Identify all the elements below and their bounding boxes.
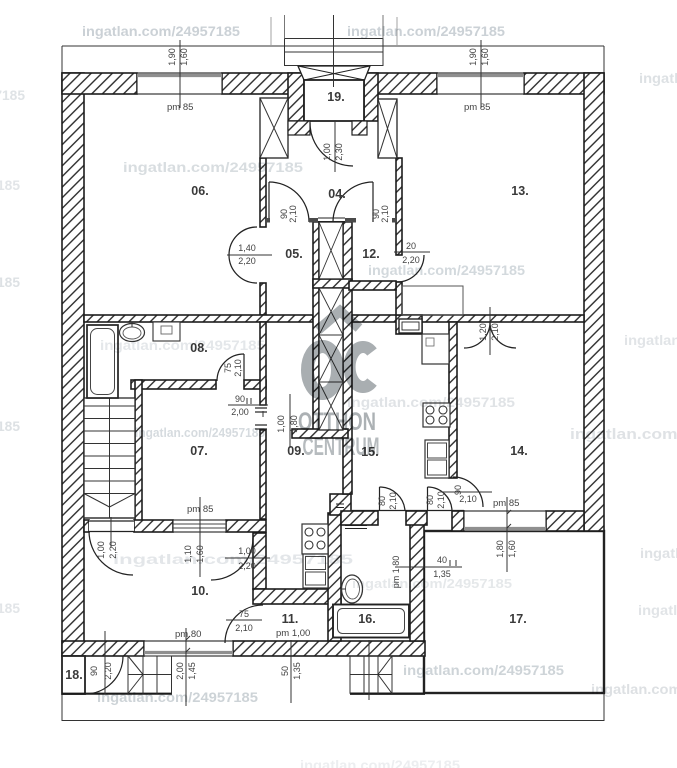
svg-text:2,10: 2,10 (459, 494, 477, 504)
svg-text:14.: 14. (510, 444, 527, 458)
svg-text:06.: 06. (191, 184, 208, 198)
svg-text:05.: 05. (285, 247, 302, 261)
svg-text:12.: 12. (362, 247, 379, 261)
svg-text:OTTHON: OTTHON (298, 408, 376, 436)
svg-text:1,35: 1,35 (292, 662, 302, 680)
svg-text:ingatlan.com/24957185: ingatlan.com/24957185 (135, 425, 265, 440)
svg-text:CENTRUM: CENTRUM (303, 433, 380, 461)
svg-text:19.: 19. (327, 90, 344, 104)
svg-text:ingatlan.com/24957185: ingatlan.com/24957185 (403, 662, 564, 678)
svg-text:2,10: 2,10 (436, 491, 446, 509)
svg-text:18.: 18. (65, 668, 82, 682)
svg-text:2,10: 2,10 (288, 205, 298, 223)
svg-text:10.: 10. (191, 584, 208, 598)
svg-text:ingatlan.com/24957185: ingatlan.com/24957185 (0, 418, 20, 434)
svg-text:90: 90 (89, 666, 99, 676)
svg-text:pm 85: pm 85 (187, 504, 213, 515)
svg-text:pm 85: pm 85 (464, 102, 490, 113)
svg-text:ingatlan.com/24957185: ingatlan.com/24957185 (97, 689, 258, 705)
svg-text:pm 85: pm 85 (493, 498, 519, 509)
svg-text:80: 80 (377, 496, 387, 506)
svg-text:50: 50 (280, 666, 290, 676)
svg-text:ingatlan.com/24957185: ingatlan.com/24957185 (300, 757, 460, 768)
svg-text:1,60: 1,60 (179, 48, 189, 66)
svg-text:04.: 04. (328, 187, 345, 201)
svg-text:ingatlan.com/24957185: ingatlan.com/24957185 (624, 332, 677, 348)
svg-text:2,10: 2,10 (233, 359, 243, 377)
svg-text:2,10: 2,10 (380, 205, 390, 223)
svg-text:pm 1,00: pm 1,00 (276, 628, 310, 639)
svg-text:ingatlan.com/24957185: ingatlan.com/24957185 (100, 337, 265, 353)
svg-text:ingatlan.com/24957185: ingatlan.com/24957185 (82, 23, 240, 39)
svg-text:1,60: 1,60 (480, 48, 490, 66)
svg-text:ingatlan.com/24957185: ingatlan.com/24957185 (0, 600, 20, 616)
svg-text:16.: 16. (358, 612, 375, 626)
svg-text:ingatlan.com/24957185: ingatlan.com/24957185 (113, 551, 353, 567)
svg-text:1,20: 1,20 (478, 323, 488, 341)
svg-text:ingatlan.com/24957185: ingatlan.com/24957185 (591, 681, 677, 697)
svg-text:2,10: 2,10 (388, 492, 398, 510)
svg-text:1,80: 1,80 (495, 540, 505, 558)
svg-text:2,00: 2,00 (175, 662, 185, 680)
svg-text:ingatlan.com/24957185: ingatlan.com/24957185 (639, 70, 677, 86)
svg-text:20: 20 (406, 241, 416, 251)
svg-text:07.: 07. (190, 444, 207, 458)
svg-text:ingatlan.com/24957185: ingatlan.com/24957185 (0, 274, 20, 290)
svg-text:1,00: 1,00 (322, 143, 332, 161)
svg-text:pm 85: pm 85 (167, 102, 193, 113)
svg-text:1,00: 1,00 (276, 415, 286, 433)
svg-text:1,60: 1,60 (507, 540, 517, 558)
svg-text:ingatlan.com/24957185: ingatlan.com/24957185 (123, 159, 303, 175)
svg-text:1,90: 1,90 (468, 48, 478, 66)
svg-text:80: 80 (425, 495, 435, 505)
svg-text:pm 80: pm 80 (175, 629, 201, 640)
svg-text:ingatlan.com/24957185: ingatlan.com/24957185 (570, 426, 677, 443)
svg-text:ingatlan.com/24957185: ingatlan.com/24957185 (640, 545, 677, 561)
svg-text:90: 90 (235, 394, 245, 404)
svg-text:75: 75 (223, 363, 233, 373)
svg-text:2,10: 2,10 (235, 623, 253, 633)
svg-text:2,10: 2,10 (490, 323, 500, 341)
svg-text:40: 40 (437, 555, 447, 565)
svg-text:ingatlan.com/24957185: ingatlan.com/24957185 (638, 602, 677, 618)
svg-text:2,30: 2,30 (334, 143, 344, 161)
svg-text:1,00: 1,00 (96, 541, 106, 559)
svg-text:2,00: 2,00 (231, 407, 249, 417)
svg-text:1,45: 1,45 (187, 662, 197, 680)
svg-text:2,20: 2,20 (103, 662, 113, 680)
svg-text:2,20: 2,20 (238, 256, 256, 266)
svg-text:75: 75 (239, 609, 249, 619)
svg-text:ingatlan.com/24957185: ingatlan.com/24957185 (0, 87, 25, 103)
svg-text:ingatlan.com/24957185: ingatlan.com/24957185 (352, 576, 512, 591)
svg-text:ingatlan.com/24957185: ingatlan.com/24957185 (368, 262, 525, 278)
svg-text:ingatlan.com/24957185: ingatlan.com/24957185 (347, 23, 505, 39)
svg-text:13.: 13. (511, 184, 528, 198)
svg-text:ingatlan.com/24957185: ingatlan.com/24957185 (0, 177, 20, 193)
svg-text:1,40: 1,40 (238, 243, 256, 253)
svg-text:11.: 11. (282, 612, 299, 626)
svg-text:17.: 17. (509, 612, 526, 626)
svg-text:1,90: 1,90 (167, 48, 177, 66)
